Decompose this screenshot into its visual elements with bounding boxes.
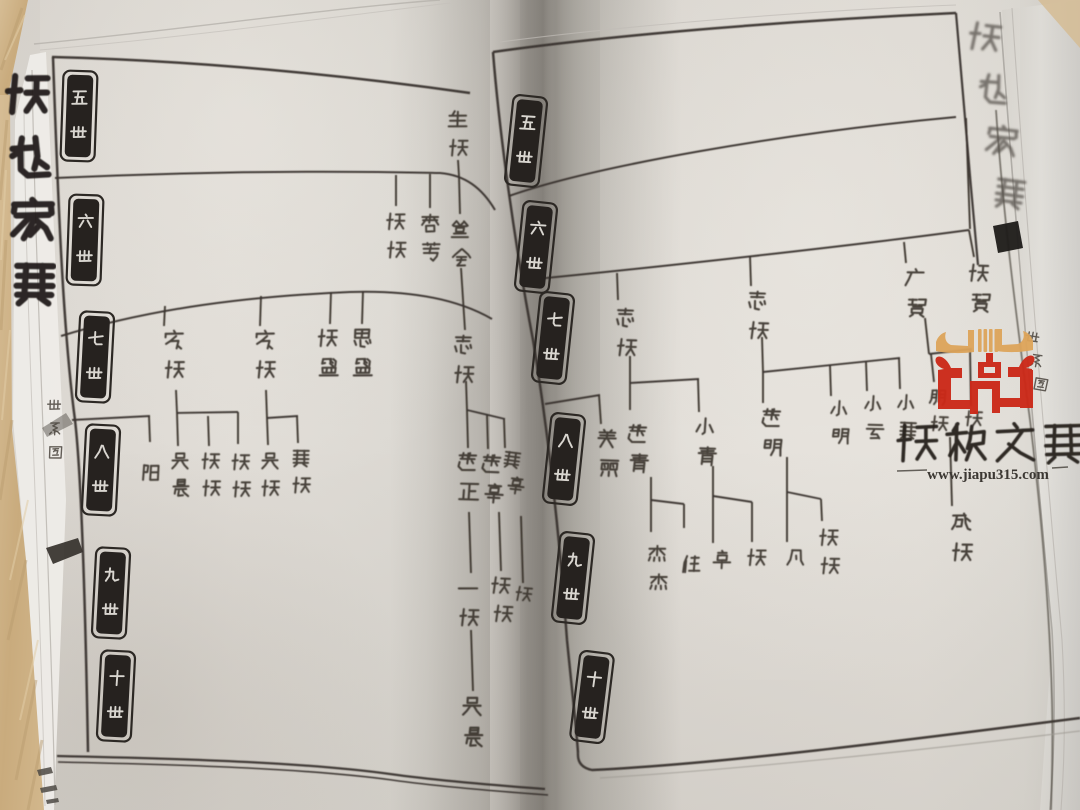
svg-text:www.jiapu315.com: www.jiapu315.com [927,467,1049,483]
